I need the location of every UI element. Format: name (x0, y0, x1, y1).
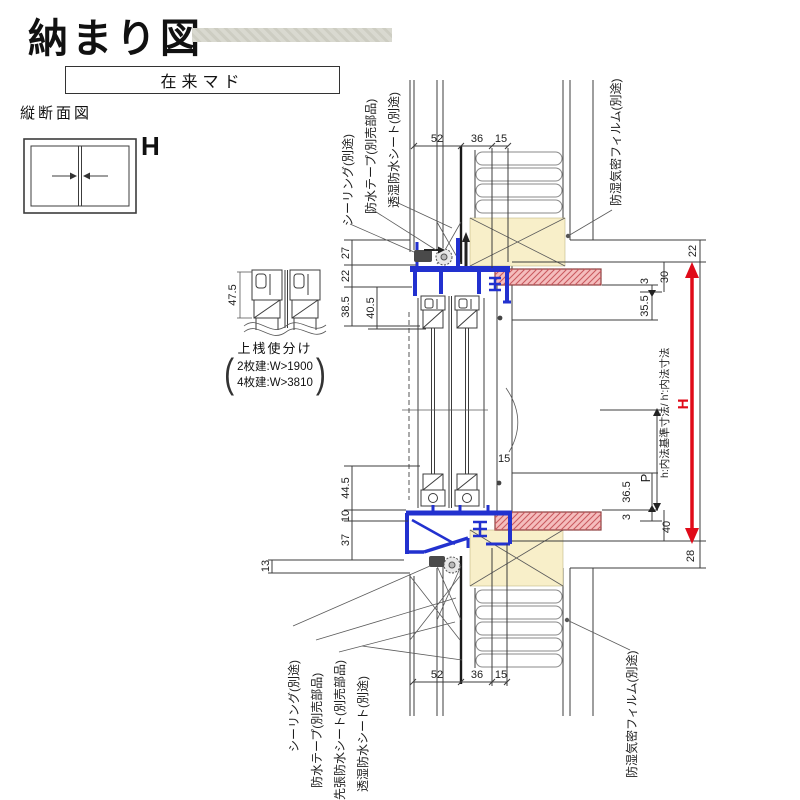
dim-top-36: 36 (471, 133, 483, 145)
callout-waterproof-tape-bottom: 防水テープ(別売部品) (309, 673, 324, 788)
dim-left-40-5: 40.5 (365, 297, 377, 318)
dim-left-37: 37 (340, 534, 352, 546)
inner-dimension-note: h:内法基準寸法/ h':内法寸法 (658, 348, 671, 478)
drawing-page: 納まり図 在来マド 縦断面図 H 上桟使分け ( 2枚建:W>1900 4枚建:… (0, 0, 800, 800)
callout-breathable-sheet-top: 透湿防水シート(別途) (386, 92, 401, 208)
dim-right-30: 30 (659, 271, 671, 283)
interior-casing-head (495, 269, 601, 285)
upper-rail-detail-drawing: 47.5 (227, 270, 326, 335)
dim-right-36-5: 36.5 (621, 481, 633, 502)
fastener-dot-bottom (497, 481, 502, 486)
dim-right-28: 28 (685, 550, 697, 562)
dim-bottom-52: 52 (431, 669, 443, 681)
height-dimension-arrow: H (675, 262, 699, 544)
window-elevation-diagram (24, 139, 136, 213)
sash-sections (402, 296, 488, 508)
section-drawing-svg: 47.5 (0, 0, 800, 800)
dim-top-52: 52 (431, 133, 443, 145)
dim-top-15: 15 (495, 133, 507, 145)
callout-sealing-bottom: シーリング(別途) (286, 660, 301, 752)
dim-right-35-5: 35.5 (639, 295, 651, 316)
dim-left-38-5: 38.5 (340, 296, 352, 317)
insulation-batt-top (476, 152, 562, 213)
dim-left-22: 22 (340, 270, 352, 282)
sealing-bead-top (414, 250, 432, 262)
callout-vapor-barrier-top: 防湿気密フィルム(別途) (608, 78, 623, 206)
callout-breathable-sheet-bottom: 透湿防水シート(別途) (355, 676, 370, 792)
callout-pre-applied-sheet-bottom: 先張防水シート(別売部品) (332, 660, 347, 800)
dim-center-15: 15 (498, 453, 510, 465)
wood-sill-blocking (470, 530, 563, 586)
dim-bottom-36: 36 (471, 669, 483, 681)
fastener-dot-top (498, 316, 503, 321)
dim-right-3-bottom: 3 (621, 514, 633, 520)
dim-p-symbol: P (638, 474, 653, 483)
dim-left-27: 27 (340, 247, 352, 259)
insulation-batt-bottom (476, 590, 562, 667)
sliding-direction-arrows (52, 173, 108, 180)
callout-vapor-barrier-bottom: 防湿気密フィルム(別途) (624, 650, 639, 778)
dim-right-22: 22 (687, 245, 699, 257)
dim-bottom-15: 15 (495, 669, 507, 681)
dim-47-5: 47.5 (227, 284, 239, 305)
dim-left-13: 13 (260, 560, 272, 572)
dim-right-3-top: 3 (639, 278, 651, 284)
dim-left-44-5: 44.5 (340, 477, 352, 498)
wood-lintel (470, 218, 565, 266)
callout-waterproof-tape-top: 防水テープ(別売部品) (363, 99, 378, 214)
height-symbol-red: H (675, 399, 692, 410)
dim-right-40: 40 (661, 521, 673, 533)
dim-left-10: 10 (340, 510, 352, 522)
dim-47-5-lines (237, 272, 252, 318)
sealing-bead-bottom (429, 556, 445, 567)
callout-sealing-top: シーリング(別途) (340, 134, 355, 226)
